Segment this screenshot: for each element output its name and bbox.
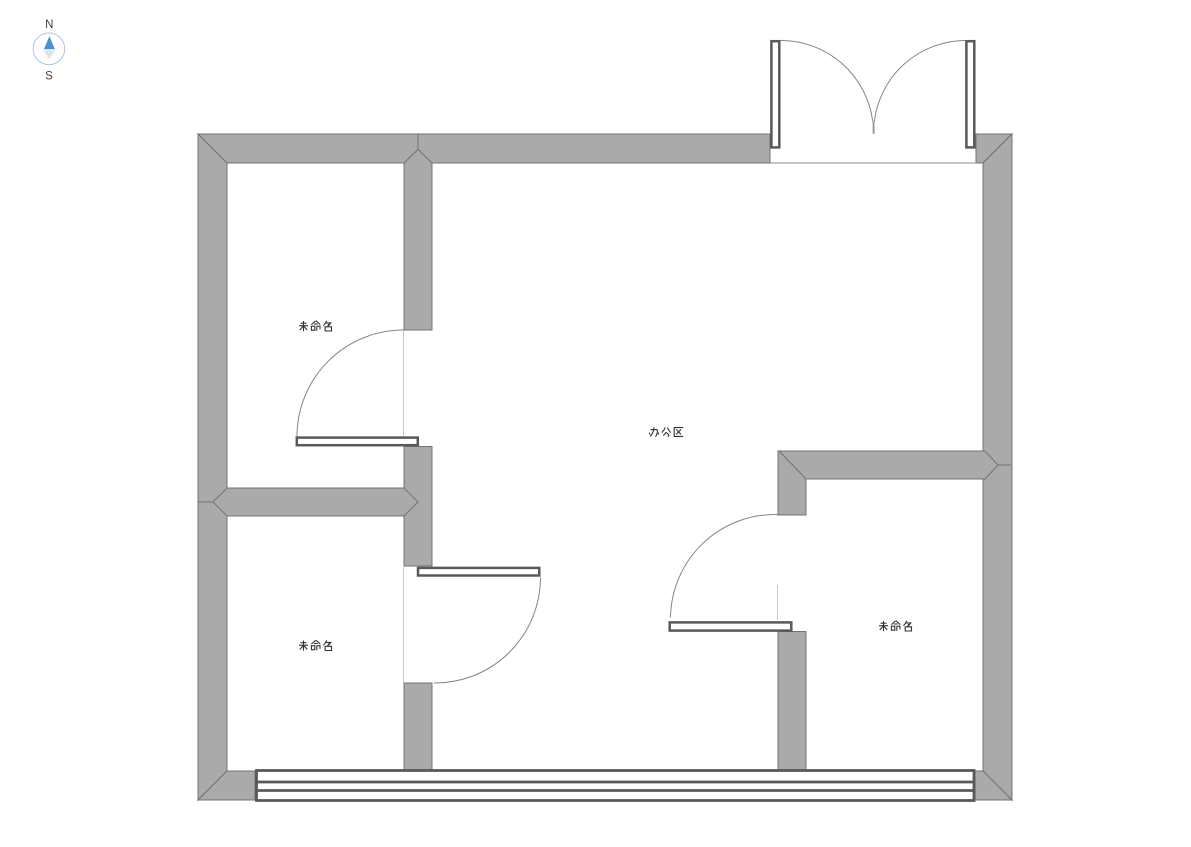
svg-text:N: N: [45, 19, 53, 31]
svg-text:S: S: [45, 71, 53, 83]
